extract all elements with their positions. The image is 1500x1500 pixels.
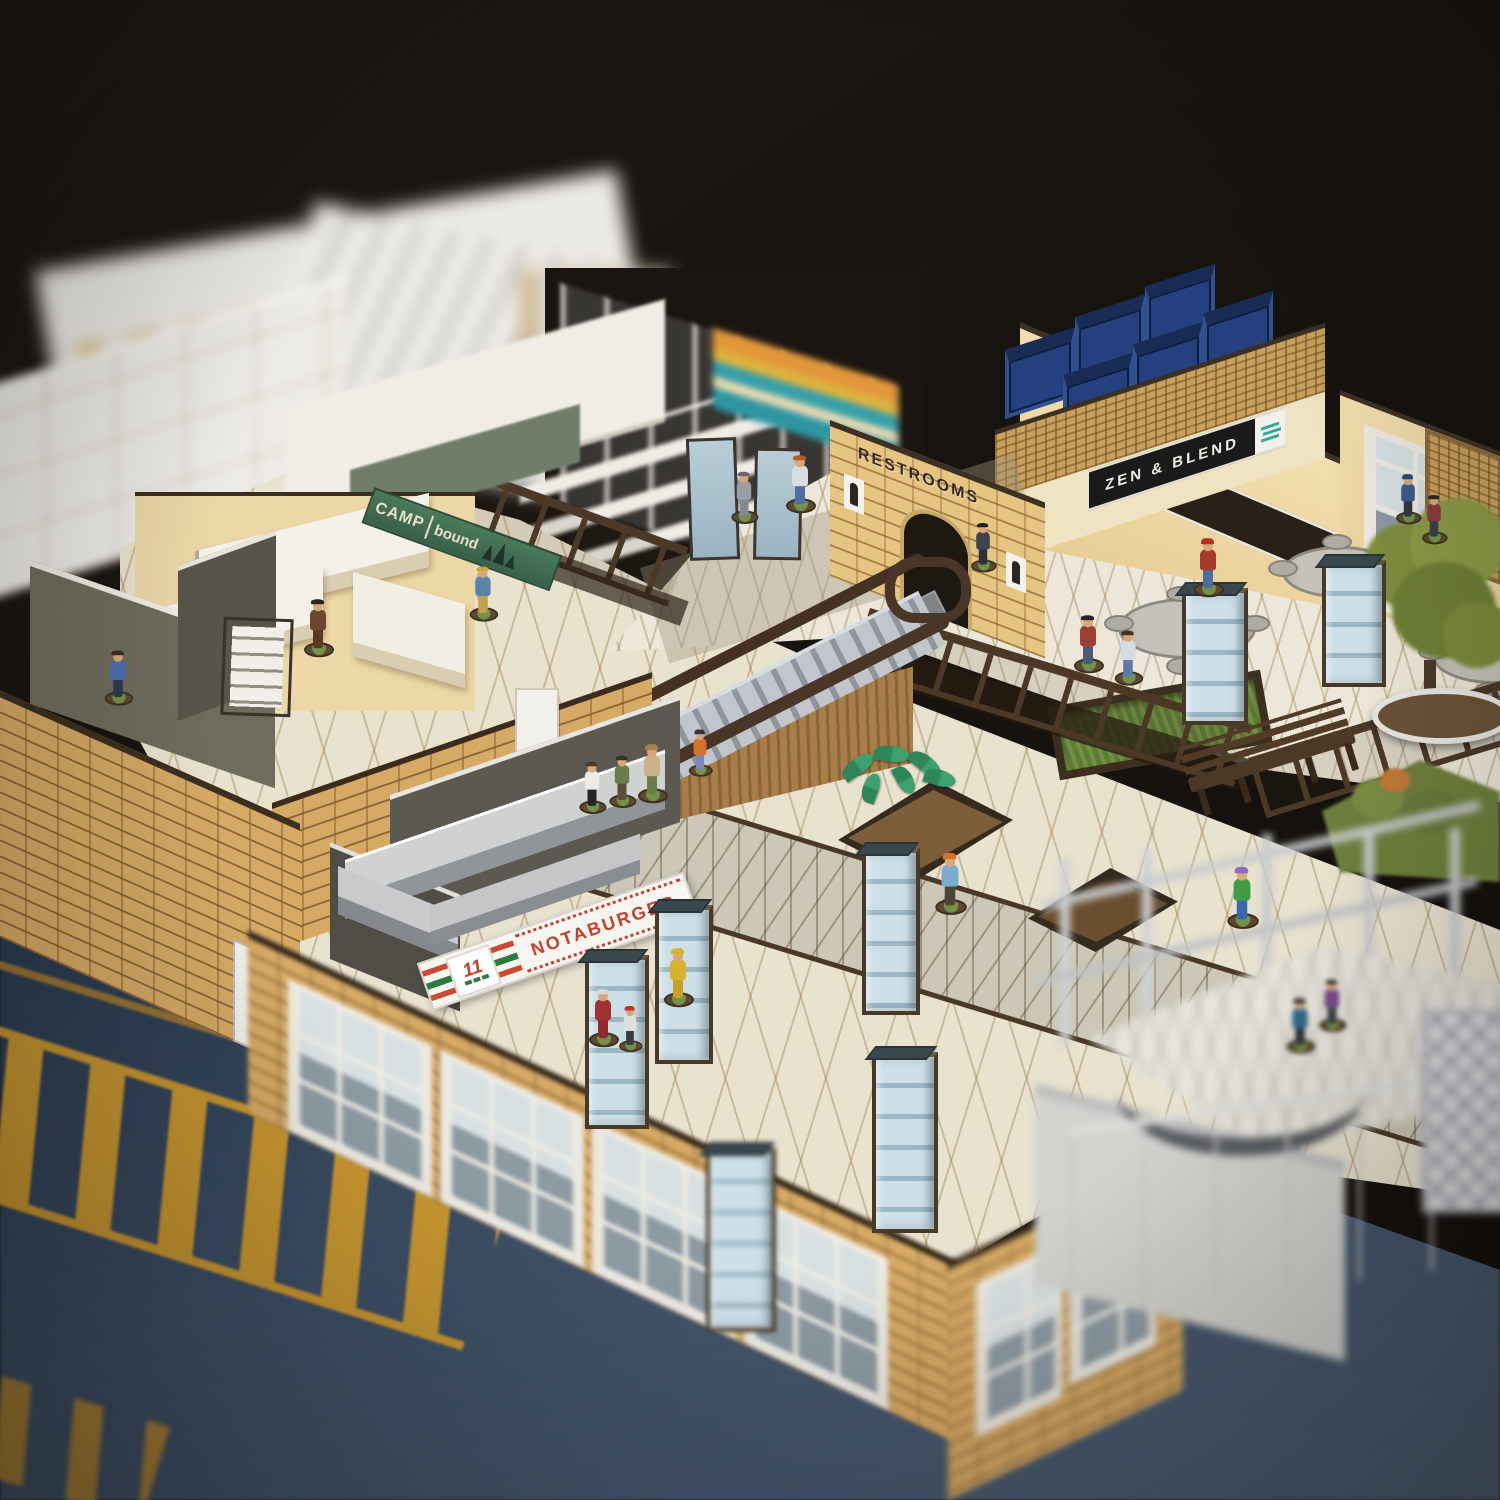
wall-poster [220,617,293,717]
escalator-top-loop [885,557,971,623]
restrooms-sign: RESTROOMS [858,445,979,509]
partition-board-2 [753,448,803,561]
camp-sign-word1: CAMP [372,499,426,533]
person-glyph-icon [1012,560,1020,585]
partition-board [686,437,740,561]
restroom-door-plaque-left [844,473,864,515]
camp-sign-word2: bound [432,521,481,553]
person-glyph-icon [850,482,858,507]
zen-rake-icon [1255,409,1285,455]
mall-entrance-structure [1030,828,1500,1388]
entrance-lattice-panel [1422,1010,1500,1213]
miniature-mall-photo: ZEN & BLEND RESTROOMS [0,0,1500,1500]
planter-pit-with-monstera [838,780,1013,880]
restroom-door-plaque-right [1006,552,1026,594]
display-shelf-3 [353,572,465,688]
round-tree-planter [1372,688,1500,744]
pine-trees-silhouette-icon [482,537,521,569]
indoor-tree [1358,492,1500,792]
